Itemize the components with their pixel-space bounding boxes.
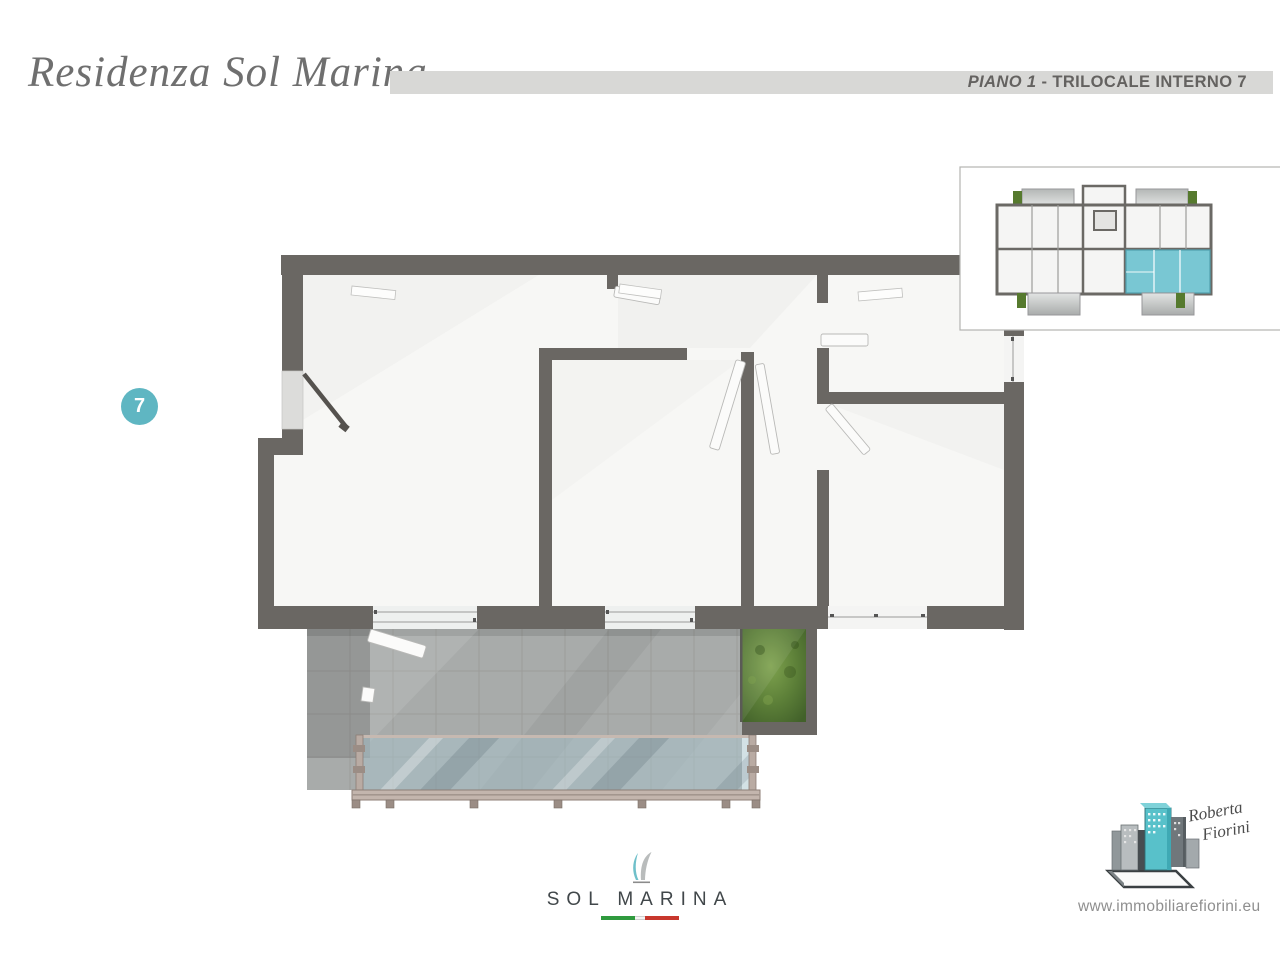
garden-patch <box>740 629 806 722</box>
italian-flag-bar <box>601 916 679 920</box>
apartment-floors <box>274 275 1004 607</box>
unit-type-label: TRILOCALE INTERNO 7 <box>1052 73 1247 92</box>
sol-marina-logo: SOL MARINA <box>530 851 750 920</box>
railing-posts <box>352 800 760 808</box>
header-band: PIANO 1 - TRILOCALE INTERNO 7 <box>390 71 1273 94</box>
agency-website: www.immobiliarefiorini.eu <box>1078 898 1258 916</box>
minimap <box>960 167 1280 330</box>
header-separator: - <box>1037 73 1053 92</box>
residence-title: Residenza Sol Marina <box>28 48 398 97</box>
sol-marina-wordmark: SOL MARINA <box>530 889 750 911</box>
sail-icon <box>620 851 660 885</box>
glass-balcony <box>352 735 760 808</box>
floor-label: PIANO 1 <box>968 73 1037 92</box>
brochure-page: Residenza Sol Marina PIANO 1 - TRILOCALE… <box>0 0 1280 960</box>
unit-number-badge: 7 <box>121 388 158 425</box>
